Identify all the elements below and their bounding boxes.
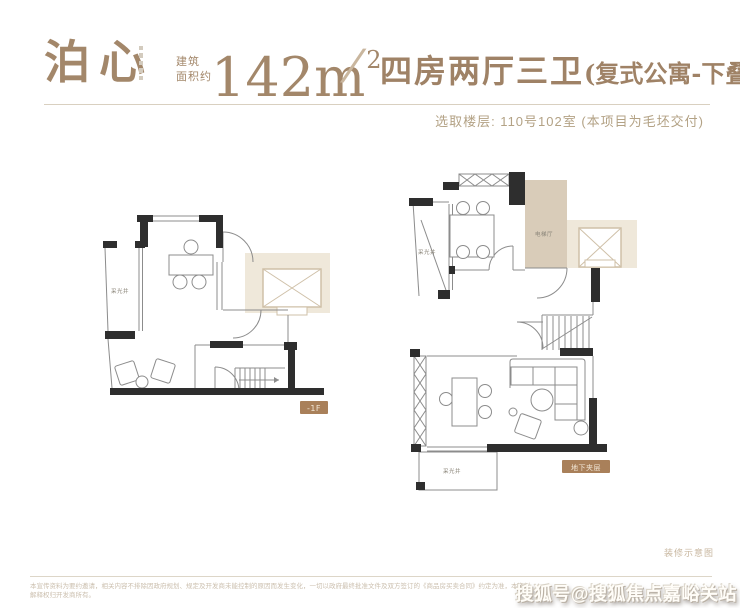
layout-title-note: (复式公寓-下叠) <box>584 59 740 88</box>
chair <box>173 275 187 289</box>
sofa-cushion <box>511 367 533 385</box>
footer-divider <box>30 576 712 577</box>
floorplan-poster: 泊心 建筑 面积约 142m2 / 四房两厅三卫(复式公寓-下叠) 选取楼层: … <box>0 0 740 608</box>
watermark: 搜狐号@搜狐焦点嘉峪关站 <box>515 580 737 606</box>
floorplan-lower-level: 采光井 -1F <box>95 205 350 425</box>
area-label-line2: 面积约 <box>176 70 212 85</box>
project-seal-decoration <box>139 46 143 80</box>
sofa-cushion <box>555 385 577 404</box>
header-divider <box>44 104 710 105</box>
armchair <box>150 358 175 383</box>
side-table <box>509 408 517 416</box>
sofa-cushion <box>555 404 577 420</box>
sofa-cushion <box>555 367 577 385</box>
floor-info: 选取楼层: 110号102室 (本项目为毛坯交付) <box>435 111 704 130</box>
floorplan-basement-level: 采光井 电梯厅 采光井 地下夹层 <box>405 160 670 505</box>
floor-badge: -1F <box>300 401 328 414</box>
rug <box>531 389 553 411</box>
elevator-hall-label: 电梯厅 <box>535 230 553 238</box>
furniture <box>114 240 213 388</box>
disclaimer: 本宣传资料为要约邀请，相关内容不排除因政府规划、规定及开发商未能控制的原因而发生… <box>30 582 590 600</box>
disclaimer-line2: 解释权归开发商所有。 <box>30 591 590 600</box>
sofa-cushion <box>533 367 555 385</box>
chair <box>479 385 492 398</box>
chair <box>477 202 490 215</box>
stairs <box>542 316 592 350</box>
chair <box>479 406 492 419</box>
armchair <box>514 413 542 439</box>
light-well-label: 采光井 <box>111 287 129 295</box>
chair <box>184 240 198 254</box>
dining-table <box>452 378 477 426</box>
chair <box>440 393 453 406</box>
floor-badge-label: 地下夹层 <box>571 463 601 472</box>
area-label: 建筑 面积约 <box>176 55 212 85</box>
chair <box>477 246 490 259</box>
area-label-line1: 建筑 <box>176 55 212 70</box>
elevator-hall <box>525 180 637 268</box>
disclaimer-line1: 本宣传资料为要约邀请，相关内容不排除因政府规划、规定及开发商未能控制的原因而发生… <box>30 582 590 591</box>
floor-badge-label: -1F <box>307 404 321 413</box>
desk <box>169 255 213 275</box>
elevator-shaft <box>245 253 330 315</box>
stairs <box>235 368 279 391</box>
layout-title: 四房两厅三卫(复式公寓-下叠) <box>380 46 740 92</box>
layout-title-main: 四房两厅三卫 <box>380 52 584 90</box>
page-title: 泊心 <box>44 30 154 94</box>
light-well-label-bottom: 采光井 <box>443 467 461 475</box>
area-number: 142m <box>211 46 365 109</box>
floor-badge: 地下夹层 <box>562 460 610 473</box>
chair <box>192 275 206 289</box>
side-table <box>136 376 148 388</box>
chair <box>457 202 470 215</box>
light-well-label-top: 采光井 <box>418 248 436 256</box>
schematic-note: 装修示意图 <box>664 546 714 559</box>
side-table <box>574 421 588 435</box>
chair <box>457 246 470 259</box>
